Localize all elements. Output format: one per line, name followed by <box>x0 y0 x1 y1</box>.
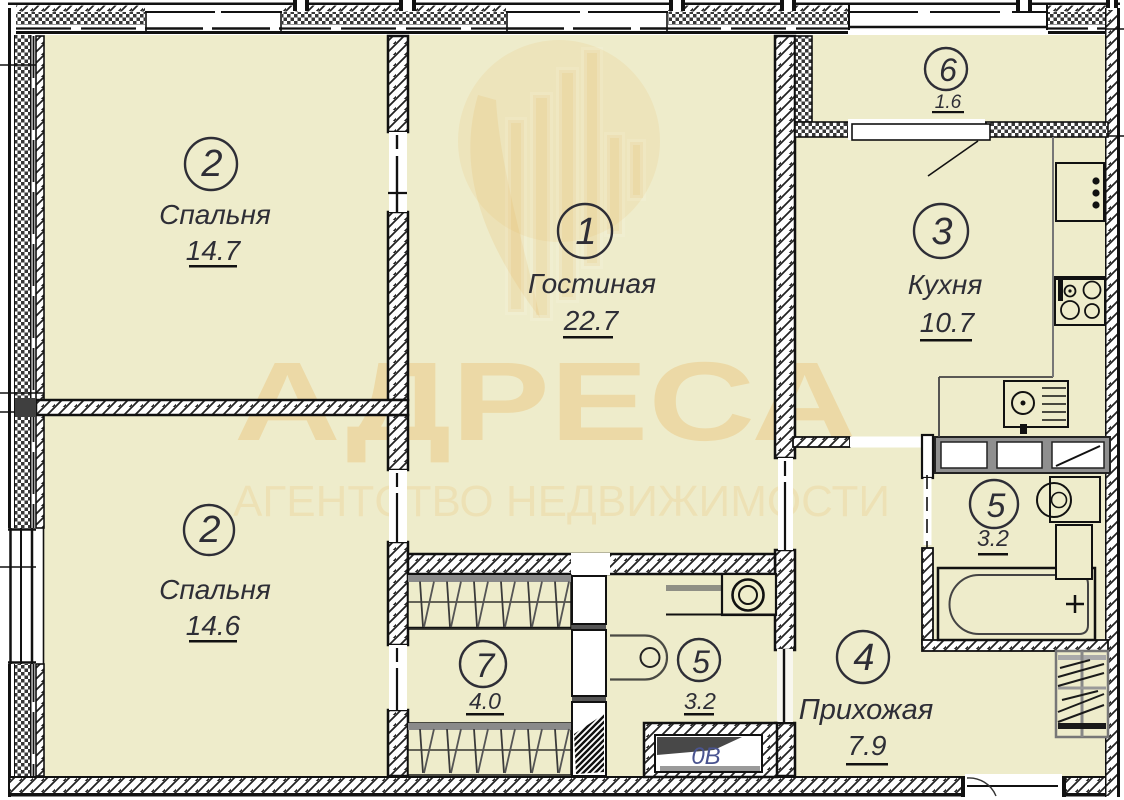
svg-text:0В: 0В <box>691 743 720 770</box>
svg-text:22.7: 22.7 <box>563 305 620 336</box>
svg-text:1.6: 1.6 <box>935 92 962 113</box>
svg-text:2: 2 <box>198 509 220 551</box>
svg-text:3: 3 <box>931 211 952 253</box>
svg-text:7: 7 <box>476 647 496 685</box>
svg-text:2: 2 <box>200 143 222 185</box>
svg-text:6: 6 <box>939 52 957 88</box>
svg-text:4: 4 <box>853 637 874 679</box>
svg-text:5: 5 <box>987 487 1006 525</box>
svg-text:5: 5 <box>692 644 710 680</box>
svg-text:7.9: 7.9 <box>848 730 887 761</box>
svg-text:Кухня: Кухня <box>908 269 983 300</box>
svg-text:10.7: 10.7 <box>920 307 976 338</box>
svg-text:Спальня: Спальня <box>159 574 271 605</box>
svg-text:1: 1 <box>575 211 596 253</box>
svg-text:3.2: 3.2 <box>977 525 1009 551</box>
svg-text:Гостиная: Гостиная <box>528 268 656 299</box>
svg-text:3.2: 3.2 <box>684 688 716 714</box>
svg-text:14.6: 14.6 <box>186 610 241 641</box>
svg-text:Прихожая: Прихожая <box>799 694 934 726</box>
svg-text:4.0: 4.0 <box>469 688 501 714</box>
svg-text:14.7: 14.7 <box>186 235 242 266</box>
svg-text:Спальня: Спальня <box>159 199 271 230</box>
